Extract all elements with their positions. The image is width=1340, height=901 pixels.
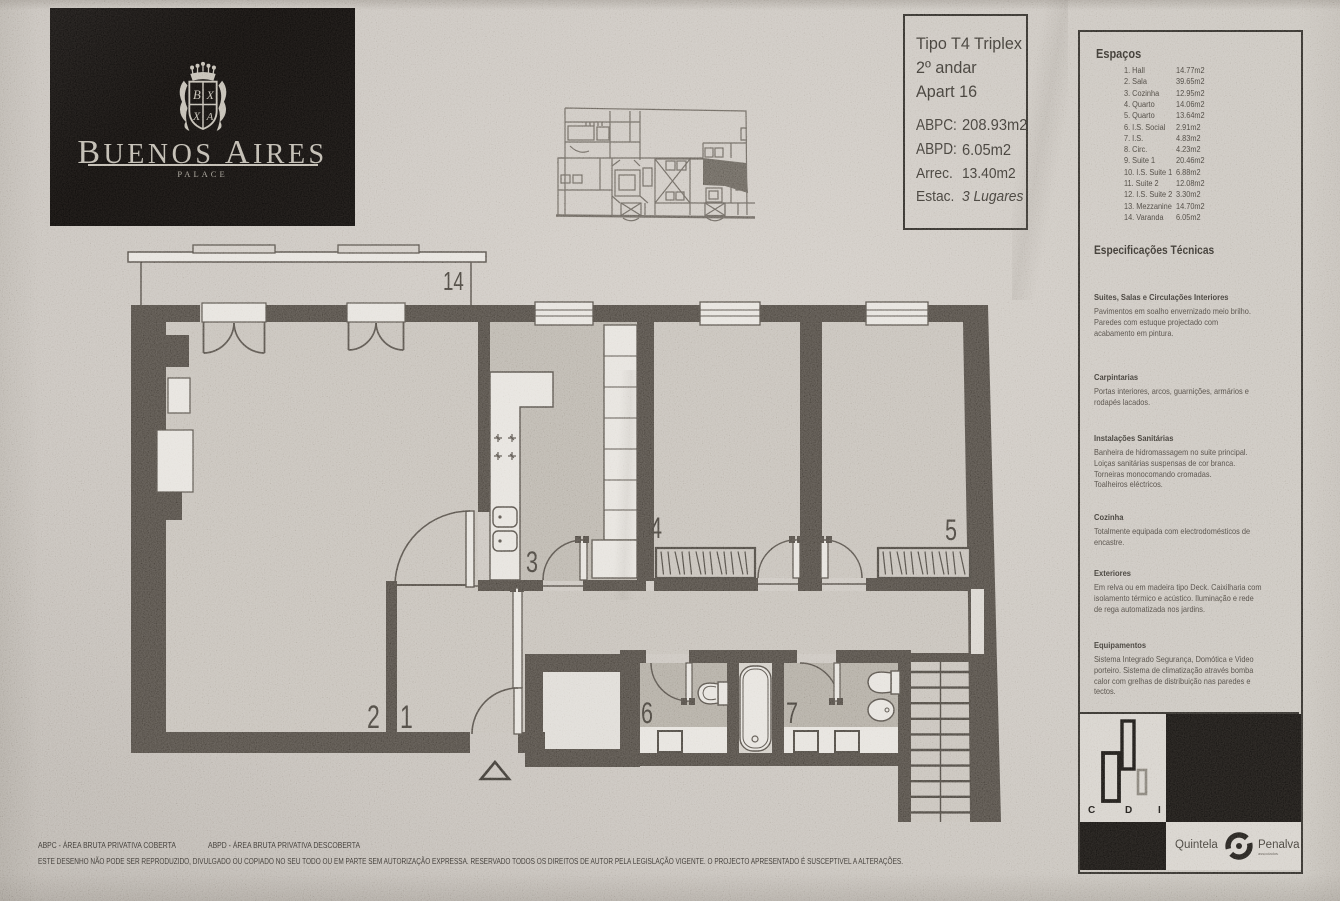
svg-text:5: 5 — [945, 512, 957, 546]
svg-text:2: 2 — [367, 699, 380, 735]
svg-text:3: 3 — [526, 544, 538, 578]
svg-text:7: 7 — [786, 695, 798, 729]
svg-text:1: 1 — [400, 699, 413, 735]
svg-text:14: 14 — [443, 266, 464, 296]
svg-text:6: 6 — [641, 695, 653, 729]
